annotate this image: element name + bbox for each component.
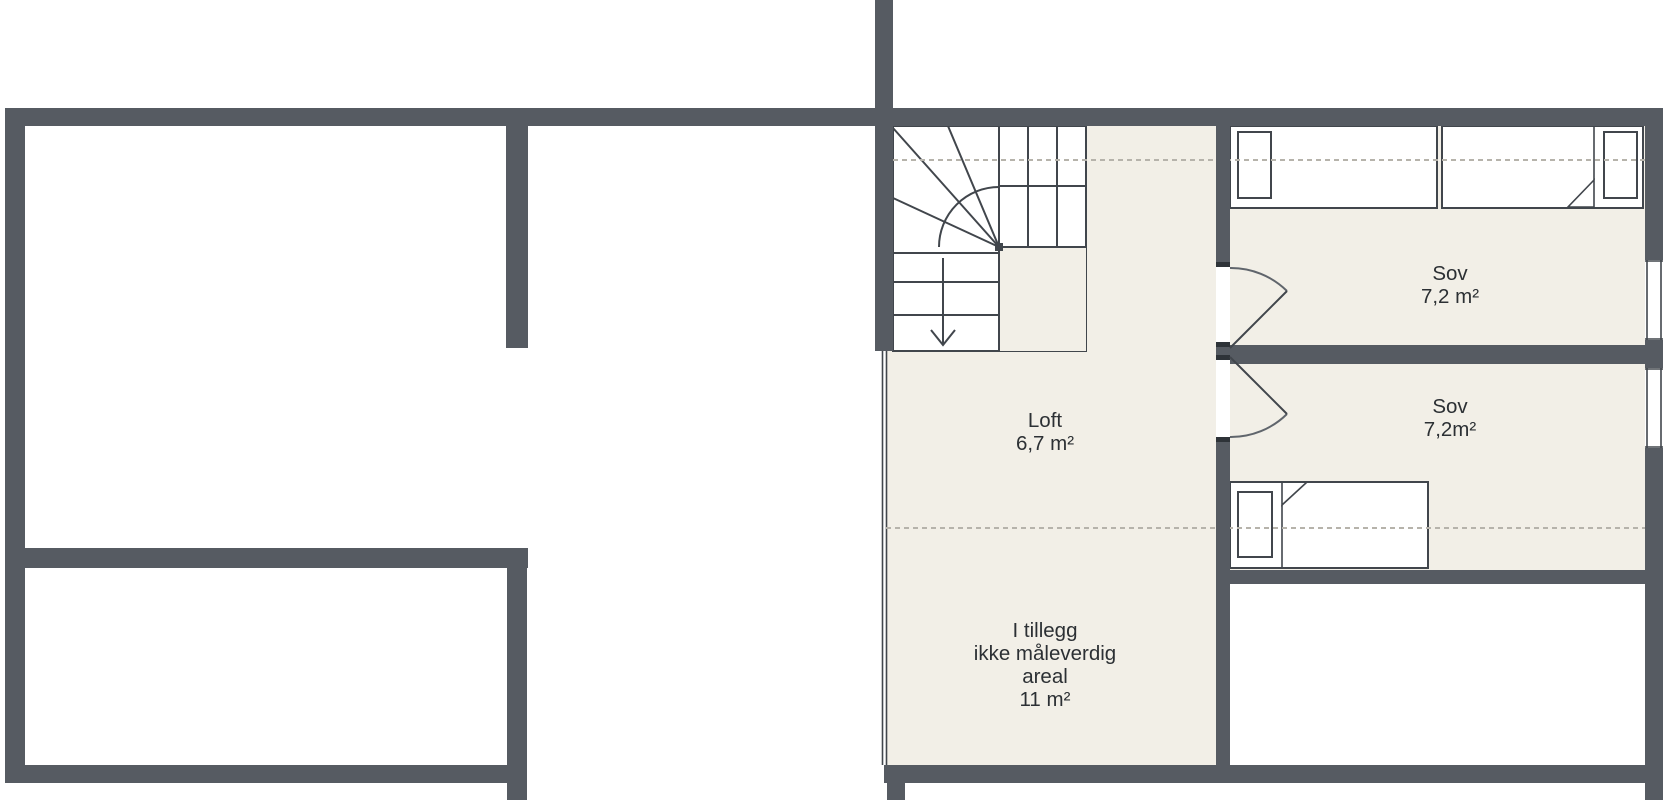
room-area-loft: 6,7 m² [1016, 432, 1074, 455]
wall-mid-lower-vertical [507, 548, 527, 800]
pillow [1604, 132, 1637, 198]
wall-bedroom-bottom [1216, 570, 1663, 584]
wall-left [5, 108, 25, 783]
pillow [1238, 492, 1272, 557]
bed-bottom [1230, 482, 1428, 568]
wall-mid-upper-vertical [506, 126, 528, 348]
stair-newel-post [995, 243, 1003, 251]
bed-top-right [1442, 126, 1643, 208]
room-area-bedroom-bottom: 7,2m² [1424, 418, 1477, 441]
window-bedroom-top [1645, 260, 1663, 340]
wall-bottom-left [5, 765, 527, 783]
wall-loft-divider-upper [1216, 126, 1230, 262]
wall-bottom-stub [887, 783, 905, 800]
floor-plan: Loft 6,7 m² Sov 7,2 m² Sov 7,2m² I tille… [0, 0, 1670, 800]
door-jamb-cap [1216, 262, 1230, 267]
room-label-loft: Loft [1028, 409, 1062, 432]
wall-bedroom-divider [1230, 345, 1663, 364]
staircase-landing [999, 247, 1086, 351]
wall-right-lower [1645, 448, 1663, 800]
additional-area-label-line4: 11 m² [1020, 688, 1071, 711]
wall-top [5, 108, 1663, 126]
additional-area-label-line1: I tillegg [1013, 619, 1078, 642]
wall-bottom [884, 765, 1663, 783]
additional-area-label-line2: ikke måleverdig [974, 642, 1116, 665]
room-label-bedroom-bottom: Sov [1432, 395, 1468, 418]
wall-right-middle [1645, 340, 1663, 368]
wall-loft-divider-lower [1216, 437, 1230, 783]
room-area-bedroom-top: 7,2 m² [1421, 285, 1479, 308]
wall-right-upper [1645, 108, 1663, 260]
wall-mid-horizontal [25, 548, 528, 568]
door-jamb-cap [1216, 342, 1230, 347]
door-jamb-cap [1216, 437, 1230, 442]
floor-plan-canvas: Loft 6,7 m² Sov 7,2 m² Sov 7,2m² I tille… [0, 0, 1670, 800]
bed-top-left [1230, 126, 1437, 208]
pillow [1238, 132, 1271, 198]
window-bedroom-bottom [1645, 368, 1663, 448]
additional-area-label-line3: areal [1022, 665, 1068, 688]
wall-top-stub-stair-west [875, 0, 893, 351]
door-jamb-cap [1216, 355, 1230, 360]
room-label-bedroom-top: Sov [1432, 262, 1468, 285]
